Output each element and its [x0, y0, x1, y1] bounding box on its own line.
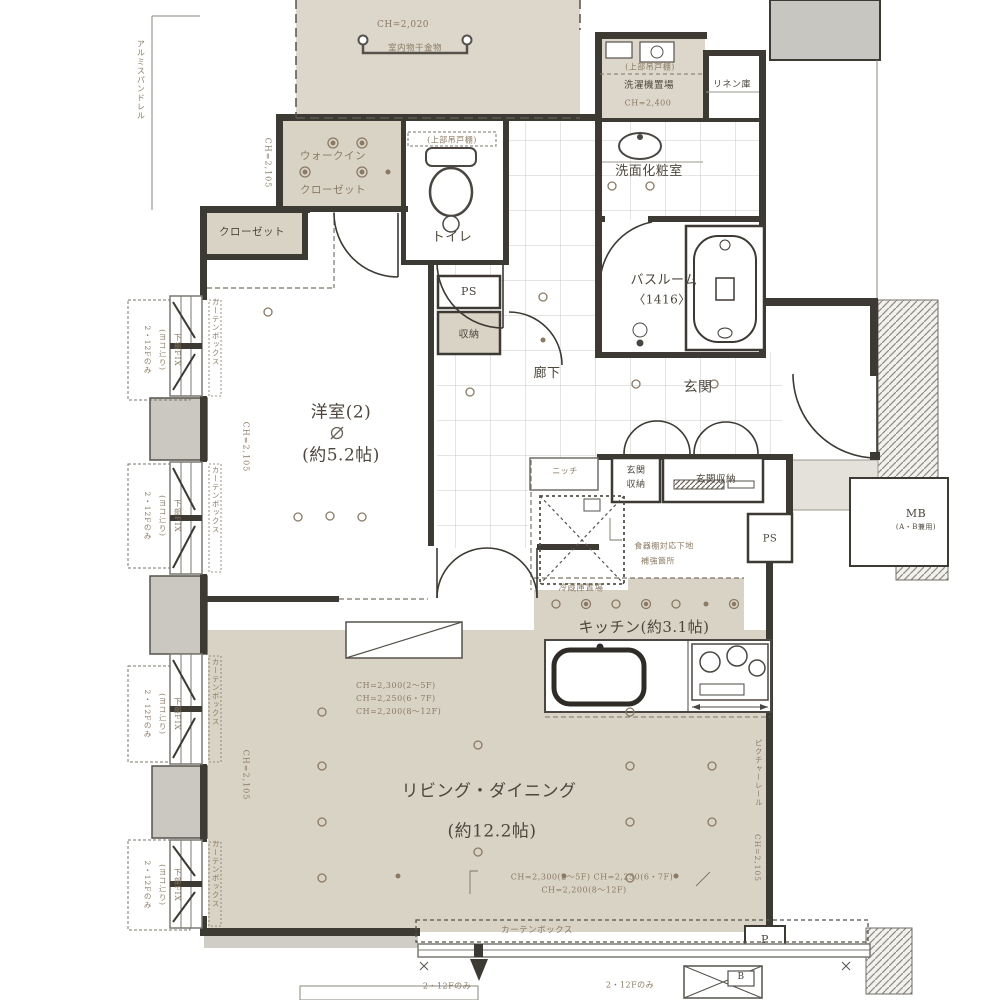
kitchen-label: キッチン(約3.1帖) [578, 619, 709, 636]
living-ceiling-height-right-label: CH=2,105 [753, 834, 761, 882]
niche-label: ニッチ [552, 468, 578, 477]
cupboard-note-label-1: 食器棚対応下地 [634, 543, 694, 552]
shoe-cabinet-1-label-2: 収納 [626, 481, 645, 491]
bottom-ch-label-1: CH=2,300(2〜5F) CH=2,250(6・7F) [511, 874, 673, 883]
curtain-box-side-label-4: カーテンボックス [211, 840, 219, 908]
picture-rail-label: ピクチャーレール [754, 739, 762, 807]
slashed-downlight-icon [331, 427, 343, 439]
bottom-ch-label-2: CH=2,200(8〜12F) [541, 887, 626, 896]
window-note-2-line-1: 下部FIX [173, 499, 181, 533]
living-ceiling-height-left-label: CH=2,105 [241, 750, 250, 801]
balcony-ch-label: CH=2,020 [377, 21, 429, 31]
indoor-drying-label: 室内物干金物 [388, 44, 442, 53]
shoe-cabinet-2-label: 玄関収納 [696, 475, 736, 485]
storage-label: 収納 [459, 330, 480, 341]
curtain-box-label: カーテンボックス [501, 926, 573, 935]
living-ch-line-3: CH=2,200(8〜12F) [356, 708, 441, 717]
bathroom-label: バスルーム [630, 274, 697, 288]
kitchen-counter [545, 640, 771, 717]
entrance-label: 玄関 [684, 380, 713, 395]
western-ceiling-height-label: CH=2,105 [241, 422, 250, 473]
washroom-label: 洗面化粧室 [615, 165, 683, 179]
western-room-size-label: (約5.2帖) [302, 447, 380, 466]
floors-only-label-left: 2・12Fのみ [423, 983, 471, 992]
cupboard-note-label-2: 補強箇所 [641, 558, 675, 567]
western-room-label: 洋室(2) [311, 404, 372, 423]
window-note-4-line-3: 2・12Fのみ [143, 860, 151, 909]
window-note-2-line-3: 2・12Fのみ [143, 491, 151, 540]
b-mark-label: B [737, 973, 744, 983]
wic-ceiling-height-label: CH=2,105 [263, 138, 272, 189]
shoe-cabinet-1-label-1: 玄関 [626, 467, 645, 477]
floor-plan: CH=2,020 室内物干金物 アルミスパンドレル ウォークイン クローゼット … [0, 0, 1000, 1000]
refrigerator-space-label: 冷蔵庫置場 [558, 584, 603, 593]
window-note-3-line-1: 下部FIX [173, 697, 181, 731]
walk-in-closet-label-2: クローゼット [300, 185, 366, 197]
meter-box-label: MB [906, 508, 926, 520]
toilet-label: トイレ [432, 231, 473, 245]
window-note-1-line-3: 2・12Fのみ [143, 325, 151, 374]
living-ch-line-1: CH=2,300(2〜5F) [356, 682, 436, 691]
pipe-space-2-label: PS [763, 534, 778, 545]
window-note-1-line-2: (ヨコ辷り) [158, 329, 166, 371]
linen-closet-label: リネン庫 [713, 81, 751, 91]
curtain-box-side-label-3: カーテンボックス [211, 658, 219, 726]
window-note-2-line-2: (ヨコ辷り) [158, 495, 166, 537]
curtain-box-side-label-2: カーテンボックス [211, 466, 219, 534]
floors-only-label-right: 2・12Fのみ [606, 982, 654, 991]
spandrel-label: アルミスパンドレル [136, 40, 145, 121]
toilet-shelf-label: (上部吊戸棚) [427, 137, 477, 146]
bottom-window [418, 944, 870, 981]
window-note-4-line-1: 下部FIX [173, 868, 181, 902]
walk-in-closet-label-1: ウォークイン [300, 151, 366, 163]
window-note-4-line-2: (ヨコ辷り) [158, 864, 166, 906]
living-ch-line-2: CH=2,250(6・7F) [356, 695, 436, 704]
window-note-1-line-1: 下部FIX [173, 333, 181, 367]
bathroom-size-label: 〈1416〉 [633, 293, 691, 306]
corridor-label: 廊下 [533, 367, 560, 381]
laundry-shelf-label: (上部吊戸棚) [625, 64, 675, 73]
p-mark-label: P [761, 934, 769, 946]
window-note-3-line-3: 2・12Fのみ [143, 689, 151, 738]
pipe-space-1-label: PS [461, 286, 477, 298]
laundry-ceiling-height-label: CH=2,400 [625, 100, 672, 109]
living-dining-size-label: (約12.2帖) [447, 823, 536, 842]
curtain-box-side-label-1: カーテンボックス [211, 298, 219, 366]
living-dining-label: リビング・ダイニング [402, 783, 577, 802]
window-note-3-line-2: (ヨコ辷り) [158, 693, 166, 735]
closet-label: クローゼット [219, 227, 285, 239]
laundry-label: 洗濯機置場 [624, 81, 674, 91]
meter-box-sub-label: (A・B兼用) [896, 524, 936, 532]
